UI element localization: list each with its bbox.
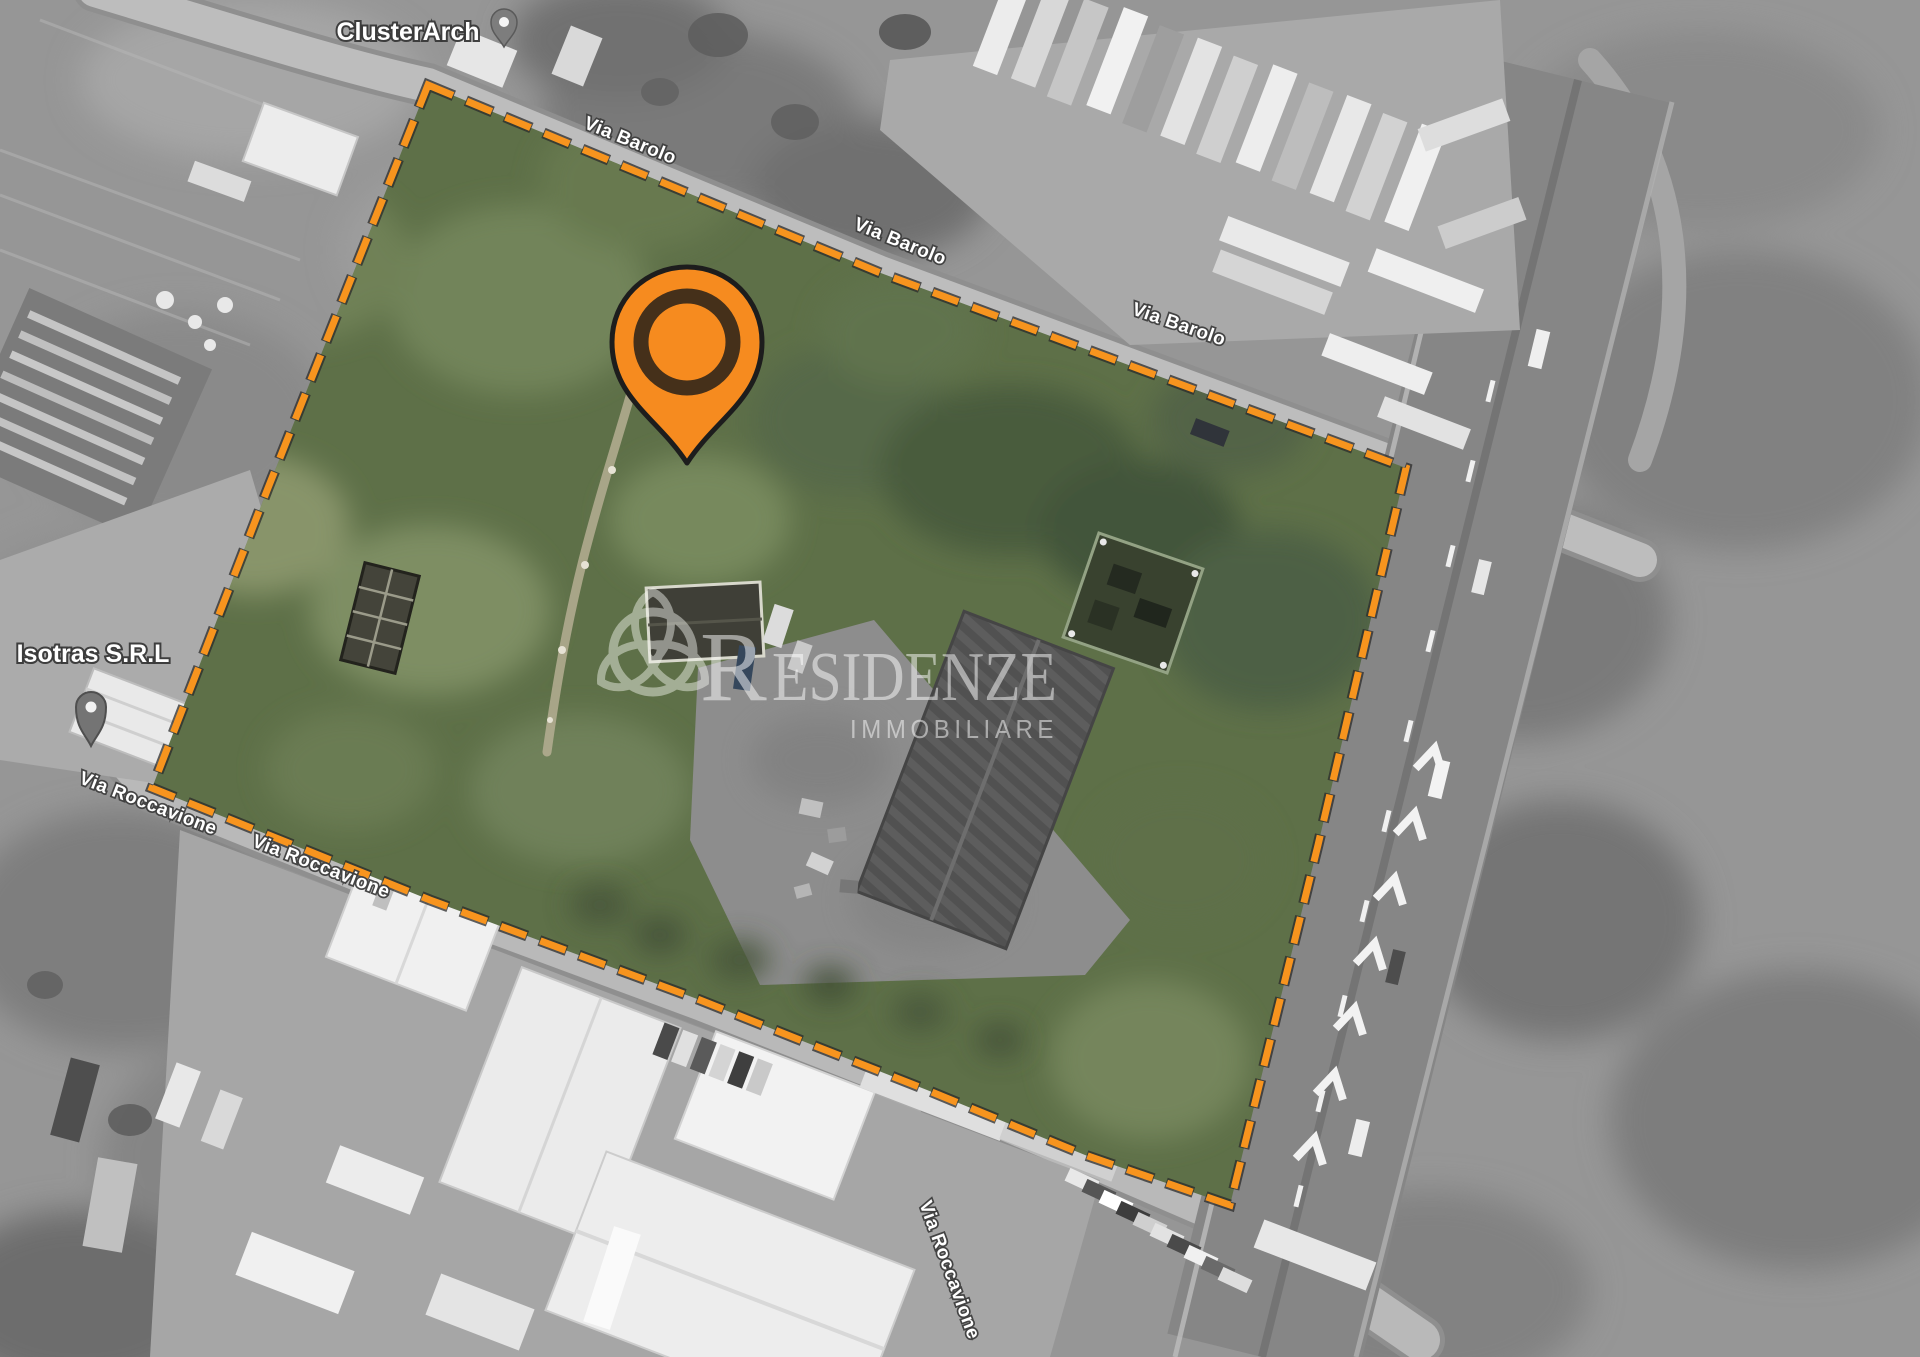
poi-pin-hole xyxy=(86,702,97,713)
watermark-name: ESIDENZE xyxy=(772,639,1057,716)
place-label-clusterarch: ClusterArch xyxy=(336,18,479,46)
place-label-isotras: Isotras S.R.L xyxy=(17,640,170,668)
watermark-subtitle: IMMOBILIARE xyxy=(850,714,1058,744)
poi-pin-hole xyxy=(499,17,509,27)
satellite-map[interactable]: Via Barolo Via Barolo Via Barolo Via Roc… xyxy=(0,0,1920,1357)
watermark-initial: R xyxy=(700,611,767,722)
